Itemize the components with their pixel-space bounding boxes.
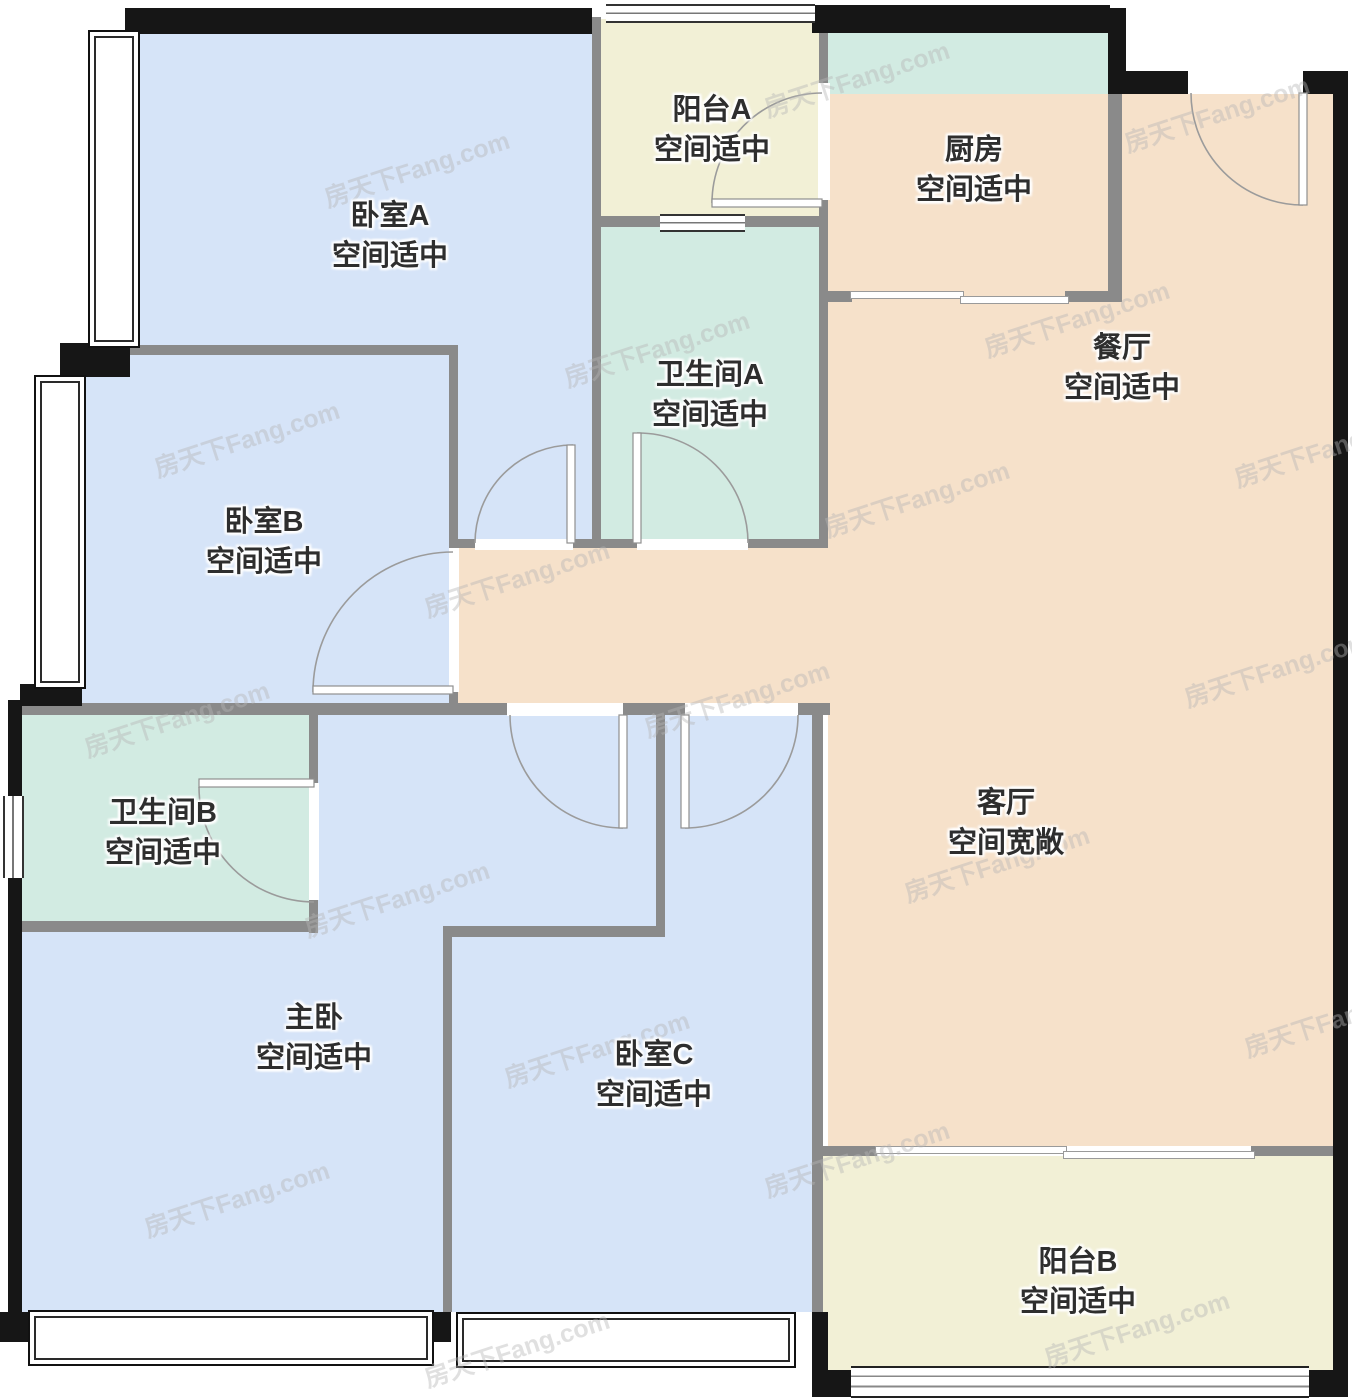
door-leaf (712, 199, 822, 207)
door-arc-bedroom-c (685, 715, 798, 828)
room-name: 卧室C (596, 1035, 712, 1075)
room-note: 空间适中 (206, 542, 322, 582)
room-label-balcony-b: 阳台B 空间适中 (1020, 1242, 1136, 1322)
room-name: 卧室B (206, 502, 322, 542)
room-note: 空间适中 (332, 236, 448, 276)
room-label-balcony-a: 阳台A 空间适中 (654, 90, 770, 170)
room-note: 空间适中 (1064, 368, 1180, 408)
door-leaf (199, 779, 314, 787)
door-swings-layer (0, 0, 1352, 1400)
room-name: 阳台B (1020, 1242, 1136, 1282)
room-note: 空间适中 (654, 130, 770, 170)
room-name: 厨房 (916, 130, 1032, 170)
room-name: 阳台A (654, 90, 770, 130)
door-arc-entry (1191, 93, 1303, 205)
room-name: 卧室A (332, 196, 448, 236)
room-name: 卫生间A (652, 355, 768, 395)
room-label-living: 客厅 空间宽敞 (948, 783, 1064, 863)
room-label-bedroom-c: 卧室C 空间适中 (596, 1035, 712, 1115)
room-name: 卫生间B (105, 793, 221, 833)
door-arc-bedroom-a (475, 445, 573, 543)
room-note: 空间宽敞 (948, 823, 1064, 863)
door-leaf (633, 433, 641, 543)
room-note: 空间适中 (916, 170, 1032, 210)
door-leaf (1299, 93, 1307, 205)
door-leaf (313, 686, 453, 694)
door-arc-bathroom-a (637, 433, 748, 543)
room-label-dining: 餐厅 空间适中 (1064, 328, 1180, 408)
room-label-kitchen: 厨房 空间适中 (916, 130, 1032, 210)
room-note: 空间适中 (105, 833, 221, 873)
room-label-bedroom-b: 卧室B 空间适中 (206, 502, 322, 582)
room-label-bedroom-a: 卧室A 空间适中 (332, 196, 448, 276)
room-label-bathroom-a: 卫生间A 空间适中 (652, 355, 768, 435)
room-name: 主卧 (256, 998, 372, 1038)
door-arc-bedroom-b (313, 552, 453, 692)
room-note: 空间适中 (256, 1038, 372, 1078)
room-name: 餐厅 (1064, 328, 1180, 368)
room-label-master: 主卧 空间适中 (256, 998, 372, 1078)
room-note: 空间适中 (652, 395, 768, 435)
door-leaf (681, 715, 689, 828)
door-leaf (567, 445, 575, 543)
door-leaf (619, 715, 627, 828)
door-arc-master (510, 715, 623, 828)
room-note: 空间适中 (1020, 1282, 1136, 1322)
room-note: 空间适中 (596, 1075, 712, 1115)
room-label-bathroom-b: 卫生间B 空间适中 (105, 793, 221, 873)
room-name: 客厅 (948, 783, 1064, 823)
floorplan-canvas: 房天下Fang.com 房天下Fang.com 房天下Fang.com 房天下F… (0, 0, 1352, 1400)
